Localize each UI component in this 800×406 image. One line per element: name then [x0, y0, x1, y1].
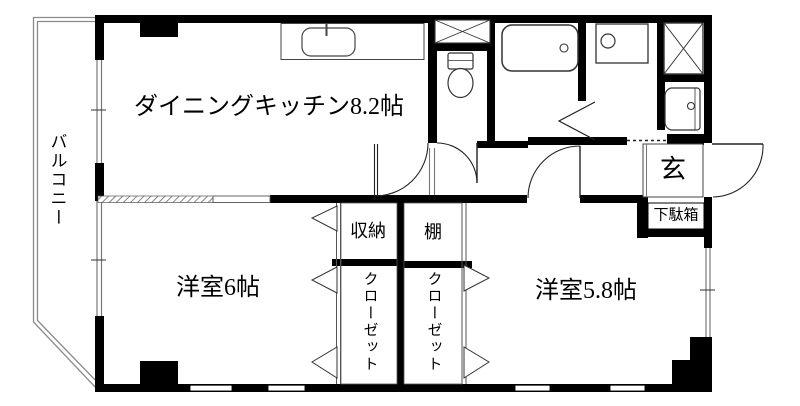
- label-shelf: 棚: [424, 223, 442, 241]
- label-shoe-cabinet: 下駄箱: [653, 209, 698, 224]
- label-western-room-6: 洋室6帖: [176, 276, 260, 300]
- kitchen-counter: [281, 24, 424, 60]
- label-entrance: 玄: [660, 157, 686, 183]
- balcony-outline: [34, 18, 100, 390]
- washing-machine-pan-icon: [596, 24, 648, 63]
- label-dining-kitchen: ダイニングキッチン8.2帖: [134, 95, 404, 119]
- pipe-shaft-icon: [435, 20, 490, 43]
- floor-plan: バルコニー ダイニングキッチン8.2帖 洋室6帖 洋室5.8帖 収納 棚 クロー…: [0, 0, 800, 406]
- walls: [95, 15, 712, 392]
- wash-basin-icon: [665, 88, 700, 130]
- toilet-icon: [448, 53, 473, 98]
- drain: [560, 44, 568, 52]
- sliding-partition: [98, 196, 270, 203]
- bathroom: [502, 25, 578, 71]
- floorplan-drawing: [0, 0, 800, 406]
- pipe-shaft-icon-2: [664, 23, 703, 74]
- label-closet-right: クローゼット: [426, 271, 441, 373]
- label-storage: 収納: [350, 222, 386, 240]
- toilet-room: [435, 20, 490, 98]
- label-closet-left: クローゼット: [362, 271, 377, 373]
- kitchen-sink: [302, 28, 355, 56]
- label-western-room-58: 洋室5.8帖: [535, 279, 637, 303]
- label-balcony: バルコニー: [49, 133, 66, 228]
